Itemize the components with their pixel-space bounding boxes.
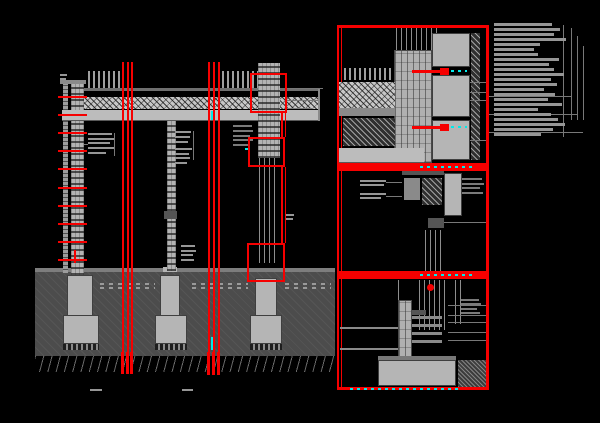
material-label-block	[461, 308, 477, 310]
annotation-text-row	[494, 33, 554, 36]
sill-bracket	[412, 332, 442, 335]
annotation-text-row	[494, 83, 557, 86]
label-bracket-line	[193, 131, 194, 160]
material-label-block	[60, 78, 66, 80]
material-label-block	[285, 218, 293, 220]
wall-tie-marker	[58, 259, 87, 261]
leader-line	[340, 327, 398, 329]
glazing-lines	[425, 230, 442, 271]
leader-line	[448, 322, 486, 323]
detail-frame-border-left	[337, 25, 339, 390]
leader-line	[386, 196, 402, 197]
leader-line	[386, 182, 402, 183]
architectural-detail-drawing	[0, 0, 600, 423]
anchor-arrow	[412, 126, 442, 129]
ground-bottom-hatch	[35, 356, 335, 372]
section-cut-line-end	[212, 352, 215, 375]
callout-connector-line	[281, 167, 283, 243]
break-band-glass-dash	[420, 274, 475, 276]
material-label-block	[462, 187, 480, 189]
annotation-text-row	[494, 38, 566, 41]
annotation-text-row	[494, 43, 540, 46]
material-label-block	[60, 74, 67, 76]
leader-line	[470, 140, 486, 141]
wall-tie-marker	[58, 205, 87, 207]
annotation-leader-line	[577, 36, 578, 120]
soil-hatch-block	[458, 360, 486, 387]
annotation-text-row	[494, 63, 549, 66]
annotation-text-row	[494, 108, 538, 111]
section-cut-line-end	[207, 352, 210, 375]
material-label-block	[285, 214, 294, 216]
edge-beam-detail	[339, 148, 424, 163]
leader-line	[84, 144, 88, 145]
column-bracket	[164, 211, 177, 219]
facade-panel	[432, 75, 470, 117]
dimension-text	[90, 389, 102, 391]
anchor-arrow-head	[440, 68, 449, 75]
label-bracket-line	[114, 133, 115, 156]
wall-tie-marker	[58, 114, 87, 116]
annotation-text-row	[494, 128, 553, 131]
slab-detail	[339, 82, 395, 108]
leader-line	[448, 315, 486, 316]
annotation-text-row	[494, 58, 559, 61]
wall-tie-marker	[58, 241, 87, 243]
transom-bracket-bar	[402, 171, 444, 175]
material-label-block	[175, 148, 192, 150]
annotation-text-row	[494, 118, 558, 121]
break-band-glass-dash	[420, 166, 475, 168]
material-label-block	[88, 147, 114, 149]
annotation-text-row	[494, 113, 551, 116]
material-label-block	[175, 141, 188, 143]
leader-line	[448, 340, 486, 341]
material-label-block	[461, 299, 479, 301]
detail-frame-border-right	[486, 25, 489, 390]
material-label-block	[181, 254, 193, 256]
wall-tie-marker	[58, 168, 87, 170]
glazing-lines	[455, 280, 463, 324]
lean-concrete-layer	[250, 344, 282, 350]
lean-concrete-layer	[155, 344, 187, 350]
leader-line	[470, 82, 486, 83]
section-cut-line	[127, 62, 129, 354]
callout-connector-line	[285, 167, 287, 243]
annotation-text-row	[494, 73, 564, 76]
footing-pedestal	[67, 275, 93, 316]
material-label-block	[462, 178, 482, 180]
detail-marker-dot	[427, 284, 434, 291]
transom-bracket	[404, 178, 420, 200]
leader-line	[448, 332, 486, 333]
annotation-text-row	[494, 78, 551, 81]
backfill-layer-line	[192, 287, 248, 289]
footing-pedestal	[160, 275, 180, 316]
backfill-layer-line	[285, 283, 331, 285]
glass-indicator-dash	[451, 126, 467, 128]
material-label-block	[175, 157, 190, 159]
leader-line	[340, 348, 398, 350]
wall-tie-marker	[58, 150, 87, 152]
detail-callout-box-3	[247, 243, 285, 282]
material-label-block	[175, 153, 189, 155]
section-cut-line-end	[126, 352, 129, 374]
annotation-text-row	[494, 48, 534, 51]
leader-line	[287, 100, 318, 101]
foundation-plinth	[378, 360, 456, 386]
leader-line	[287, 88, 323, 89]
backfill-layer-line	[285, 287, 331, 289]
material-label-block	[88, 133, 112, 135]
footing-pedestal	[255, 278, 277, 316]
section-cut-line-end	[121, 352, 124, 374]
material-label-block	[360, 193, 386, 195]
annotation-leader-line	[489, 96, 571, 97]
facade-panel	[444, 173, 462, 216]
mullion-profile-detail	[394, 50, 432, 163]
detail-callout-box-2	[248, 137, 285, 167]
dimension-text	[182, 389, 193, 391]
material-label-block	[461, 303, 481, 305]
sill-fitting	[412, 310, 426, 315]
material-label-block	[181, 245, 195, 247]
material-label-block	[88, 152, 106, 154]
steel-column	[167, 121, 176, 271]
glass-indicator-dash	[451, 70, 467, 72]
annotation-text-row	[494, 53, 538, 56]
section-cut-line	[131, 62, 133, 354]
material-label-block	[175, 162, 187, 164]
annotation-text-row	[494, 133, 541, 136]
lean-concrete-layer	[63, 344, 99, 350]
facade-panel	[432, 33, 470, 67]
section-cut-line	[218, 62, 220, 355]
wall-tie-marker	[58, 132, 87, 134]
deck-ribs-detail	[344, 68, 394, 80]
material-label-block	[360, 180, 386, 182]
annotation-text-row	[494, 23, 552, 26]
leader-line	[470, 92, 486, 93]
annotation-text-row	[494, 93, 555, 96]
material-label-block	[360, 184, 384, 186]
wall-tie-marker	[58, 96, 87, 98]
section-cut-line	[122, 62, 124, 354]
annotation-leader-line	[563, 25, 564, 137]
material-label-block	[175, 136, 190, 138]
material-label-block	[175, 131, 191, 133]
annotation-text-row	[494, 28, 560, 31]
material-label-block	[360, 197, 381, 199]
section-cut-line-end	[217, 352, 220, 375]
backfill-layer-line	[192, 283, 248, 285]
anchor-marker	[74, 250, 76, 263]
transom-bracket-hatch	[422, 178, 442, 205]
material-label-block	[181, 259, 194, 261]
material-label-block	[88, 138, 115, 140]
material-label-block	[233, 144, 249, 146]
callout-connector-line	[285, 113, 287, 137]
material-label-block	[461, 312, 480, 314]
ceiling-hatch-detail	[343, 118, 395, 146]
material-label-block	[233, 130, 253, 132]
material-label-block	[233, 125, 252, 127]
annotation-text-row	[494, 123, 565, 126]
annotation-text-row	[494, 68, 554, 71]
anchor-arrow	[412, 70, 442, 73]
material-label-block	[462, 183, 484, 185]
wall-tie-marker	[58, 223, 87, 225]
section-cut-line	[213, 62, 215, 355]
sill-bracket	[412, 324, 442, 327]
footing-pad	[250, 315, 282, 344]
anchor-arrow-head	[440, 124, 449, 131]
annotation-text-row	[494, 88, 544, 91]
section-cut-line-end	[130, 352, 133, 374]
wall-tie-marker	[58, 187, 87, 189]
detail-callout-box-1	[250, 73, 287, 113]
sill-mullion	[398, 300, 412, 358]
callout-connector-line	[281, 113, 283, 137]
annotation-leader-line	[571, 28, 572, 120]
leader-line	[287, 108, 312, 109]
annotation-leader-line	[583, 46, 584, 120]
material-label-block	[462, 192, 483, 194]
footing-pad	[63, 315, 99, 344]
leader-line	[470, 100, 486, 101]
footing-pad	[155, 315, 187, 344]
material-label-block	[181, 250, 196, 252]
annotation-text-row	[494, 103, 562, 106]
section-cut-line	[208, 62, 210, 355]
material-label-block	[88, 142, 110, 144]
break-band-glass-dash	[350, 388, 460, 390]
glass-indicator-dash	[211, 337, 213, 350]
slab-edge-line	[318, 88, 320, 121]
sill-bracket	[412, 316, 442, 319]
sill-bracket	[412, 340, 442, 343]
leader-line	[444, 222, 486, 223]
slab-soffit-line	[339, 108, 395, 116]
glass-indicator-dash	[211, 111, 213, 120]
steel-deck-ribs	[88, 71, 124, 88]
annotation-text-row	[494, 98, 548, 101]
transom-fitting	[428, 218, 444, 228]
